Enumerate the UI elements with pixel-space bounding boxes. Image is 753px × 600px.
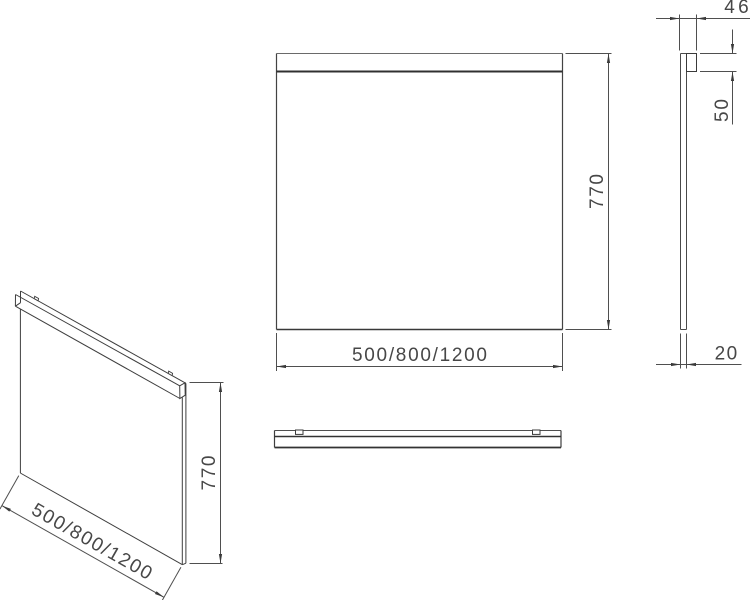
svg-text:770: 770 xyxy=(587,174,608,209)
svg-text:50: 50 xyxy=(712,99,733,122)
svg-text:770: 770 xyxy=(199,456,220,491)
svg-text:20: 20 xyxy=(715,343,738,364)
svg-text:500/800/1200: 500/800/1200 xyxy=(352,345,487,366)
